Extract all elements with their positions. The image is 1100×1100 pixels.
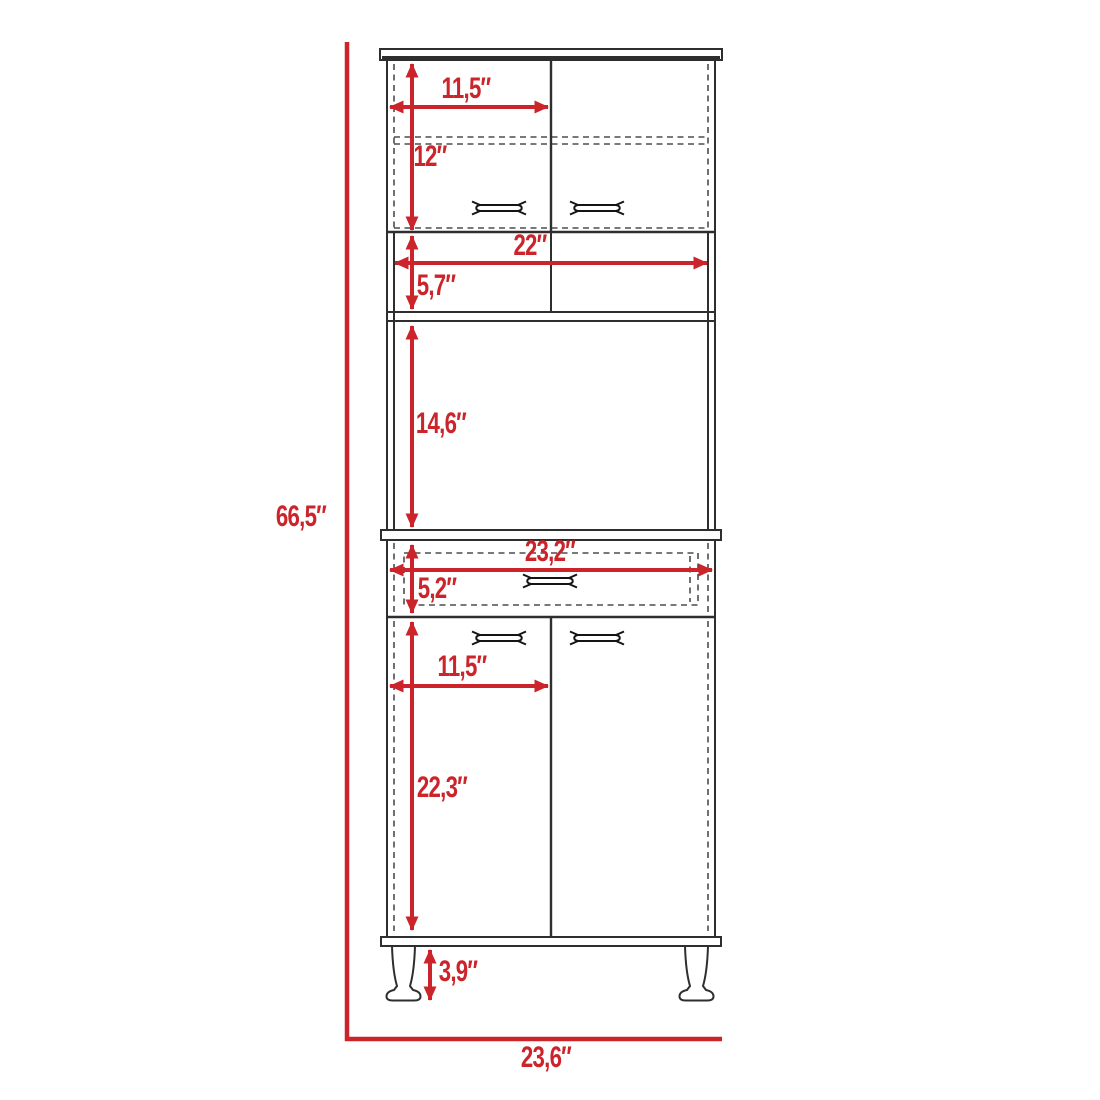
cabinet-leg xyxy=(387,946,421,1001)
door-handle-icon xyxy=(570,202,624,215)
leg-height-value: 3,9″ xyxy=(439,957,478,987)
microwave-space-height-value: 14,6″ xyxy=(416,409,466,439)
drawer-width-value: 23,2″ xyxy=(525,537,575,567)
door-handle-icon xyxy=(472,202,526,215)
hutch-door-width-label: 11,5″ xyxy=(433,74,499,104)
hutch-door-height-value: 12″ xyxy=(413,142,446,172)
open-shelf-height-label: 5,7″ xyxy=(410,271,462,301)
base-door-height-value: 22,3″ xyxy=(417,773,467,803)
hutch-door-height-label: 12″ xyxy=(408,142,453,172)
base-door-height-label: 22,3″ xyxy=(408,773,476,803)
base-door-width-label: 11,5″ xyxy=(429,652,495,682)
open-shelf-height-value: 5,7″ xyxy=(417,271,456,301)
drawer-width-label: 23,2″ xyxy=(516,537,584,567)
drawer-height-label: 5,2″ xyxy=(411,574,463,604)
base-door-width-value: 11,5″ xyxy=(438,652,487,682)
leg-height-label: 3,9″ xyxy=(432,957,484,987)
hutch-door-width-value: 11,5″ xyxy=(442,74,491,104)
microwave-space-height-label: 14,6″ xyxy=(407,409,475,439)
door-handle-icon xyxy=(570,632,624,645)
open-shelf-width-label: 22″ xyxy=(508,231,553,261)
open-shelf-width-value: 22″ xyxy=(513,231,546,261)
bottom-board xyxy=(381,937,721,946)
overall-width-label: 23,6″ xyxy=(512,1043,580,1073)
cabinet-leg xyxy=(680,946,714,1001)
overall-width-value: 23,6″ xyxy=(521,1043,571,1073)
top-board-shadow xyxy=(382,56,720,60)
drawer-handle-icon xyxy=(523,575,577,588)
drawer-height-value: 5,2″ xyxy=(418,574,457,604)
overall-height-value: 66,5″ xyxy=(276,502,326,532)
overall-height-label: 66,5″ xyxy=(267,502,335,532)
dimension-diagram: 66,5″ 23,6″ 11,5″ 12″ 22″ 5,7″ 14,6″ 23,… xyxy=(0,0,1100,1100)
door-handle-icon xyxy=(472,632,526,645)
